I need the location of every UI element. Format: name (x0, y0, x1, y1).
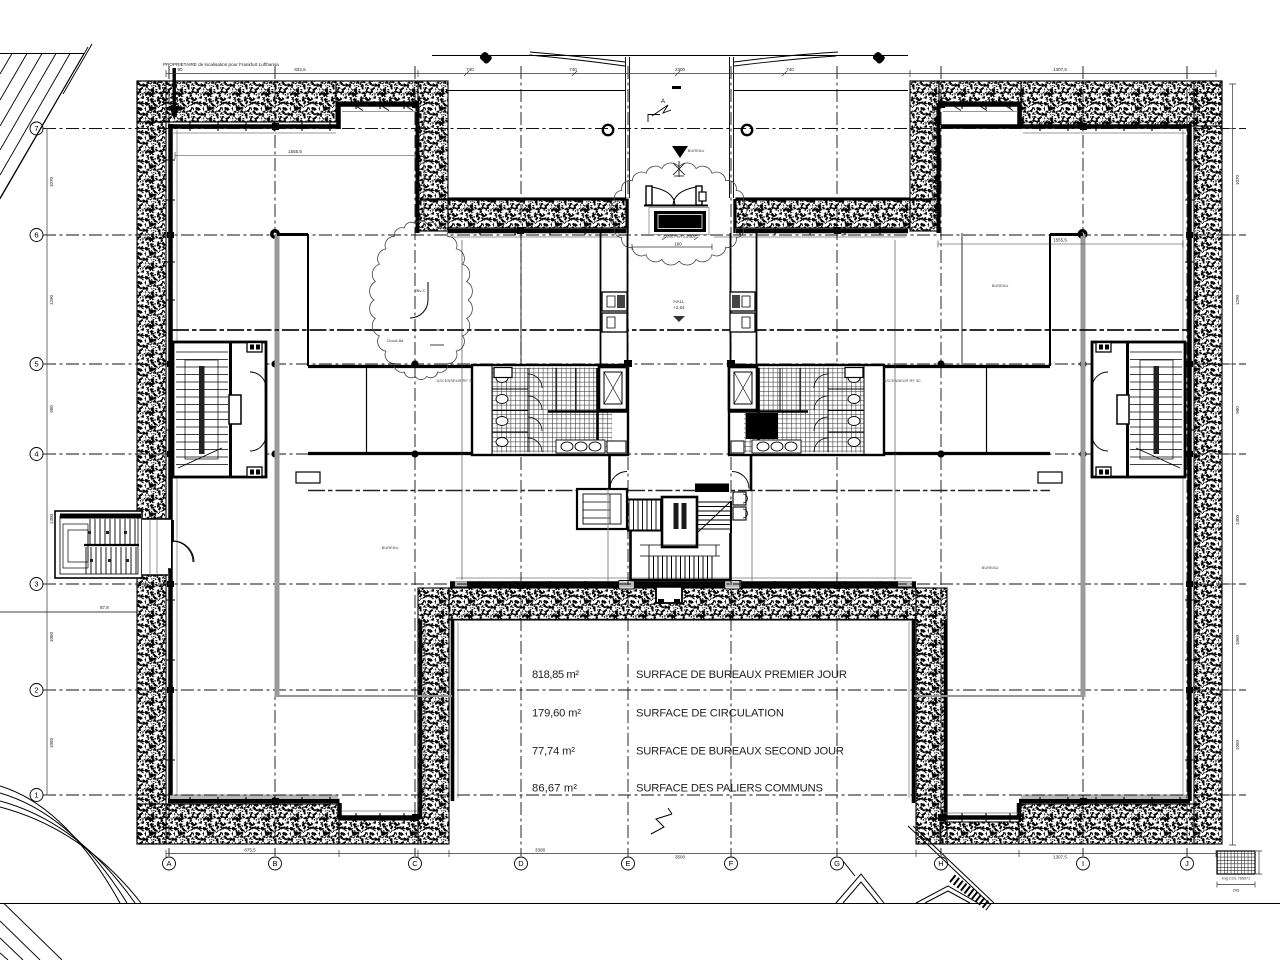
svg-text:HALL: HALL (673, 299, 685, 304)
svg-text:SANS PERTURBAT: SANS PERTURBAT (663, 235, 698, 239)
svg-text:179,60 m²: 179,60 m² (532, 708, 581, 720)
svg-text:ASCENSEUR RF 30: ASCENSEUR RF 30 (437, 378, 475, 383)
svg-text:1050: 1050 (49, 737, 54, 748)
svg-text:3500: 3500 (675, 855, 686, 860)
svg-text:833,5: 833,5 (294, 67, 306, 72)
svg-text:E: E (625, 859, 630, 868)
svg-text:img COL 765071: img COL 765071 (1222, 877, 1251, 881)
svg-text:1300: 1300 (49, 513, 54, 524)
svg-text:A: A (166, 859, 171, 868)
svg-text:1: 1 (34, 791, 38, 800)
svg-text:740: 740 (786, 67, 794, 72)
svg-text:SURFACE DE BUREAUX PREMIER JOU: SURFACE DE BUREAUX PREMIER JOUR (636, 669, 847, 681)
svg-text:1060: 1060 (1235, 634, 1240, 645)
svg-text:818,85 m²: 818,85 m² (532, 669, 579, 681)
svg-text:1290: 1290 (49, 294, 54, 305)
svg-text:BUREAU: BUREAU (382, 545, 399, 550)
svg-text:2300: 2300 (675, 67, 686, 72)
svg-text:BUREAU: BUREAU (992, 283, 1009, 288)
svg-text:J: J (1185, 859, 1189, 868)
svg-text:G: G (834, 859, 840, 868)
svg-text:1290: 1290 (1235, 294, 1240, 305)
svg-text:206: 206 (1233, 888, 1240, 893)
svg-text:1307,5: 1307,5 (1053, 67, 1067, 72)
svg-text:B: B (272, 859, 277, 868)
svg-text:1060: 1060 (49, 631, 54, 642)
svg-text:BUREAU: BUREAU (982, 565, 999, 570)
svg-text:86,67 m²: 86,67 m² (532, 783, 577, 795)
svg-text:SURFACE DE CIRCULATION: SURFACE DE CIRCULATION (636, 708, 784, 720)
svg-text:5: 5 (34, 360, 38, 369)
svg-text:77,74 m²: 77,74 m² (532, 746, 575, 758)
svg-text:D: D (518, 859, 524, 868)
svg-text:Cloud-Ba: Cloud-Ba (387, 338, 404, 343)
svg-text:H: H (938, 859, 943, 868)
svg-text:900: 900 (1235, 406, 1240, 414)
svg-text:1070: 1070 (1235, 174, 1240, 185)
svg-text:875,5: 875,5 (244, 848, 256, 853)
svg-text:2: 2 (34, 686, 38, 695)
svg-text:ASCENSEUR RF 30: ASCENSEUR RF 30 (884, 378, 922, 383)
svg-text:6: 6 (34, 231, 38, 240)
svg-text:+2,64: +2,64 (673, 305, 685, 310)
svg-text:BUREAU: BUREAU (688, 148, 705, 153)
svg-text:90: 90 (177, 67, 183, 72)
svg-text:740: 740 (466, 67, 474, 72)
svg-text:3308: 3308 (535, 848, 546, 853)
svg-text:F: F (729, 859, 734, 868)
svg-text:1050: 1050 (1235, 739, 1240, 750)
svg-text:SURFACE DE BUREAUX SECOND JOUR: SURFACE DE BUREAUX SECOND JOUR (636, 746, 844, 758)
svg-text:1300: 1300 (1235, 514, 1240, 525)
svg-text:4: 4 (34, 450, 38, 459)
svg-text:2Bv-C: 2Bv-C (414, 288, 425, 293)
svg-text:740: 740 (569, 67, 577, 72)
svg-text:1555,5: 1555,5 (1053, 238, 1067, 243)
svg-text:SURFACE DES PALIERS COMMUNS: SURFACE DES PALIERS COMMUNS (636, 783, 823, 795)
svg-text:1070: 1070 (49, 176, 54, 187)
svg-text:1307,5: 1307,5 (1053, 855, 1067, 860)
svg-text:C: C (412, 859, 418, 868)
svg-text:900: 900 (49, 405, 54, 413)
svg-text:I: I (1082, 859, 1084, 868)
svg-text:3: 3 (34, 580, 38, 589)
svg-text:160: 160 (674, 242, 682, 247)
svg-text:1555,5: 1555,5 (288, 149, 302, 154)
svg-text:87,8: 87,8 (100, 605, 109, 610)
svg-text:A: A (661, 99, 665, 105)
